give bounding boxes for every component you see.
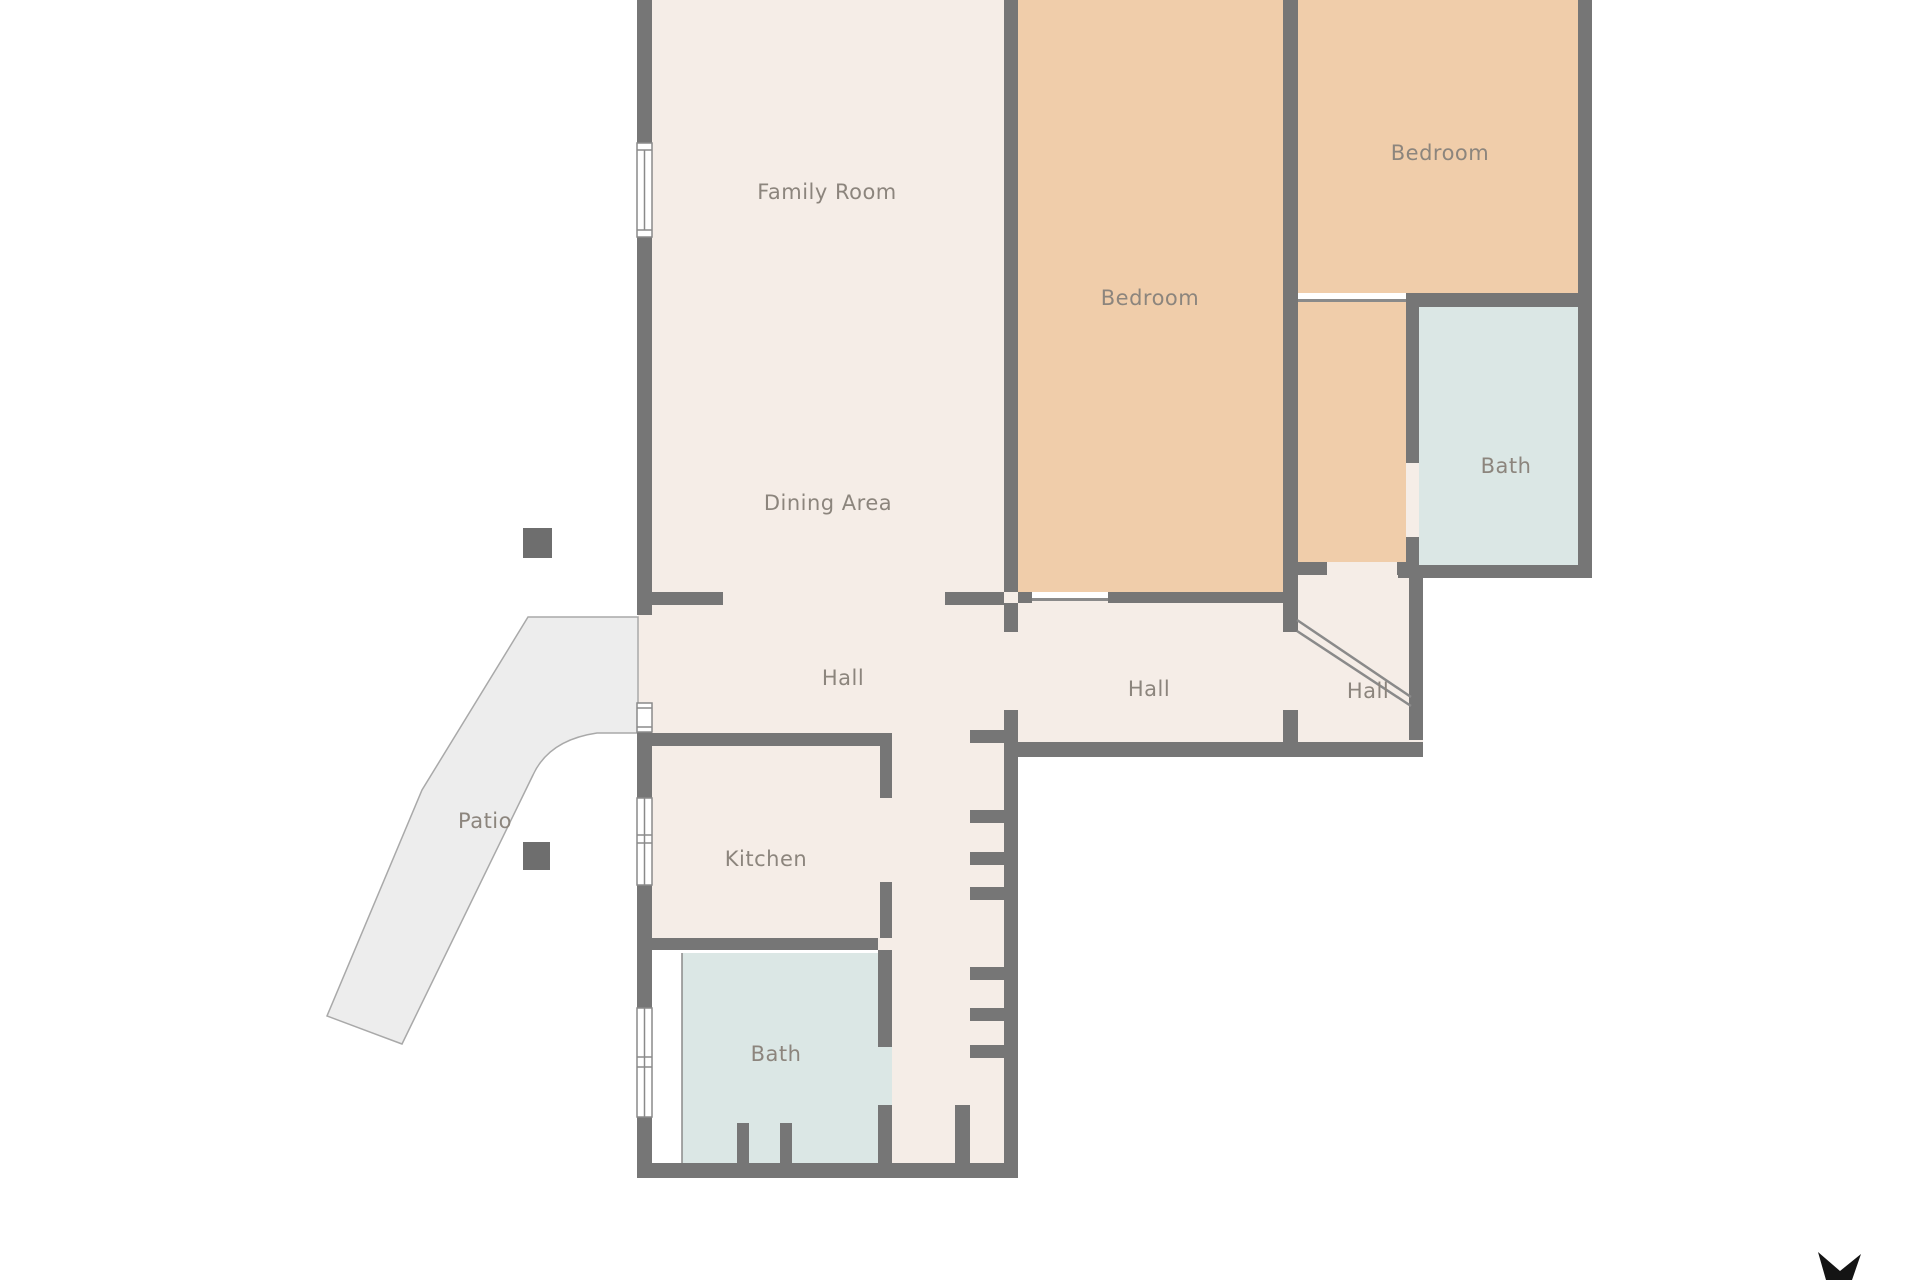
door-marker-icon — [637, 703, 652, 732]
wall-segment — [880, 882, 892, 938]
wall-segment — [1283, 0, 1298, 295]
window-icon — [637, 1008, 652, 1117]
wall-segment — [1283, 710, 1298, 742]
threshold-strip-top-line — [1298, 299, 1406, 302]
stair-stub — [970, 730, 1004, 743]
wall-segment — [1108, 592, 1283, 603]
floor-hall-left — [638, 592, 1018, 733]
wall-segment — [637, 732, 652, 798]
floor-kitchen — [652, 746, 892, 938]
stair-stub — [970, 1045, 1004, 1058]
wall-segment — [1406, 307, 1419, 463]
room-label-bedroom-center: Bedroom — [1101, 286, 1199, 310]
floor-plan-svg: Family Room Dining Area Bedroom Bedroom … — [0, 0, 1920, 1280]
wall-segment — [637, 885, 652, 1008]
room-label-bath-bottom: Bath — [751, 1042, 802, 1066]
room-label-bath-top-right: Bath — [1481, 454, 1532, 478]
floor-plan-page: Family Room Dining Area Bedroom Bedroom … — [0, 0, 1920, 1280]
wall-segment — [1397, 562, 1409, 575]
room-label-bedroom-top-right: Bedroom — [1391, 141, 1489, 165]
floor-hall-center — [1018, 592, 1283, 742]
wall-segment — [1018, 592, 1032, 603]
window-icon — [637, 143, 652, 237]
threshold-bedroom-door — [1032, 592, 1108, 598]
wall-segment — [878, 1105, 892, 1163]
patio-post — [523, 842, 550, 870]
wall-segment — [1298, 562, 1327, 575]
stair-stub — [970, 967, 1004, 980]
patio-post — [523, 528, 552, 558]
wall-segment — [1283, 295, 1298, 632]
wall-segment — [1004, 742, 1423, 757]
stair-stub — [970, 810, 1004, 823]
wall-segment — [955, 1105, 970, 1163]
wall-segment — [1406, 537, 1419, 565]
wall-segment — [1406, 293, 1592, 307]
floor-closet-strip — [1298, 295, 1419, 575]
wall-segment — [637, 237, 652, 615]
threshold-strip-top — [1298, 293, 1406, 299]
room-label-dining-area: Dining Area — [764, 491, 892, 515]
wall-segment — [737, 1123, 749, 1163]
floor-corridor — [878, 733, 1018, 1163]
door-gap-bath-top-right — [1406, 463, 1419, 537]
bath-white-strip — [652, 950, 682, 1163]
wall-segment — [780, 1123, 792, 1163]
wall-segment — [651, 938, 878, 950]
room-label-kitchen: Kitchen — [725, 847, 807, 871]
wall-segment — [945, 592, 1004, 605]
room-label-family-room: Family Room — [757, 180, 897, 204]
wall-segment — [1004, 0, 1018, 592]
wall-segment — [878, 950, 892, 1047]
wall-segment — [880, 746, 892, 798]
floor-bath-top-right — [1419, 302, 1578, 565]
threshold-bedroom-door-line — [1032, 598, 1108, 601]
wall-segment — [651, 733, 892, 746]
room-label-hall-far-right: Hall — [1347, 679, 1389, 703]
wall-segment — [637, 0, 652, 143]
room-label-hall-left: Hall — [822, 666, 864, 690]
stair-stub — [970, 1008, 1004, 1021]
north-arrow-icon — [1818, 1252, 1861, 1280]
room-label-patio: Patio — [458, 809, 512, 833]
stair-stub — [970, 852, 1004, 865]
room-label-hall-center: Hall — [1128, 677, 1170, 701]
wall-segment — [637, 1163, 1018, 1178]
wall-segment — [1398, 565, 1592, 578]
floors — [638, 0, 1578, 1163]
wall-segment — [1004, 603, 1018, 632]
window-icon — [637, 798, 652, 885]
wall-segment — [1004, 755, 1018, 1163]
door-gap-strip-bottom — [1327, 562, 1397, 575]
wall-segment — [1004, 710, 1018, 742]
stair-stub — [970, 887, 1004, 900]
wall-segment — [652, 592, 723, 605]
wall-segment — [1578, 0, 1592, 578]
wall-segment — [1409, 575, 1423, 740]
